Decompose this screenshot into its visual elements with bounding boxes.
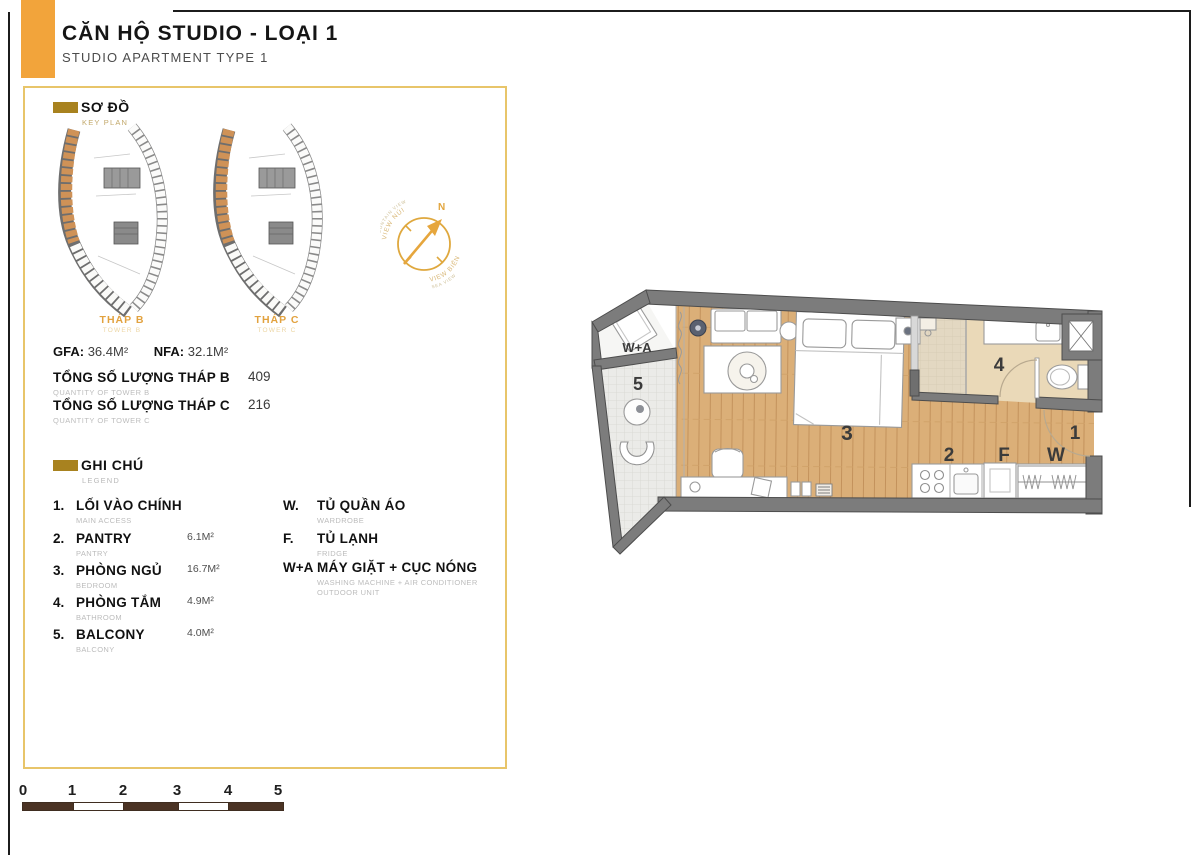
legend-title: GHI CHÚ [81, 457, 144, 473]
compass-north-label: N [438, 202, 445, 213]
label-bathroom: 4 [994, 355, 1005, 376]
legend-item-pantry: 2.PANTRY 6.1M² PANTRY [53, 530, 298, 558]
label-entrance: 1 [1070, 423, 1081, 444]
wardrobe [1018, 466, 1086, 498]
section-bar-icon [53, 102, 78, 113]
accent-bar [21, 0, 55, 78]
fridge [984, 463, 1016, 498]
scale-tick: 4 [224, 782, 232, 799]
bed [794, 312, 905, 428]
keyplan-title: SƠ ĐỒ [81, 99, 130, 115]
wall-stub [910, 370, 919, 396]
nfa-value: 32.1M² [188, 344, 228, 359]
shower-partition [911, 316, 918, 372]
tower-c-sublabel: TOWER C [258, 327, 297, 334]
quantity-c-label: TỔNG SỐ LƯỢNG THÁP C [53, 398, 230, 413]
label-bedroom: 3 [841, 422, 853, 445]
area-stats: GFA: 36.4M² NFA: 32.1M² [53, 344, 228, 359]
page-title: CĂN HỘ STUDIO - LOẠI 1 [62, 22, 338, 46]
page-frame-top [173, 10, 1191, 12]
mat [791, 482, 800, 496]
wall-bottom [658, 497, 1102, 513]
scale-tick: 2 [119, 782, 127, 799]
page-subtitle: STUDIO APARTMENT TYPE 1 [62, 50, 338, 65]
title-block: CĂN HỘ STUDIO - LOẠI 1 STUDIO APARTMENT … [62, 22, 338, 65]
quantity-b-value: 409 [248, 369, 271, 384]
floor-plan: W+A 5 3 4 1 2 F W [555, 255, 1200, 575]
scale-bar-segments [22, 802, 284, 811]
legend-item-balcony: 5.BALCONY 4.0M² BALCONY [53, 626, 298, 654]
quantity-tower-c: TỔNG SỐ LƯỢNG THÁP C 216 QUANTITY OF TOW… [53, 397, 333, 425]
tower-b-label: THÁP B [100, 313, 145, 326]
legend-item-entrance: 1.LỐI VÀO CHÍNH MAIN ACCESS [53, 497, 298, 525]
scale-tick: 0 [19, 782, 27, 799]
keyplan-towers: THÁP B TOWER B THÁP C TOWER C [40, 118, 350, 343]
tower-c-label: THÁP C [255, 313, 300, 326]
legend-section-header: GHI CHÚ LEGEND [53, 457, 144, 485]
legend-subtitle: LEGEND [82, 476, 144, 485]
kitchen-sink [954, 474, 978, 494]
gfa-value: 36.4M² [88, 344, 128, 359]
tower-b-sublabel: TOWER B [103, 327, 142, 334]
bathroom-door-leaf [1035, 358, 1039, 398]
label-pantry: 2 [944, 445, 955, 466]
quantity-b-sublabel: QUANTITY OF TOWER B [53, 388, 333, 397]
label-wardrobe: W [1047, 445, 1065, 466]
label-balcony: 5 [633, 374, 643, 394]
mat [802, 482, 811, 496]
legend-item-wardrobe: W.TỦ QUẦN ÁO WARDROBE [283, 497, 528, 525]
scale-bar: 0 1 2 3 4 5 [16, 782, 296, 822]
tower-b-plan: THÁP B TOWER B [65, 127, 163, 334]
page-frame-left [8, 12, 10, 855]
legend-left-column: 1.LỐI VÀO CHÍNH MAIN ACCESS 2.PANTRY 6.1… [53, 497, 303, 667]
compass-needle [404, 226, 436, 264]
legend-right-column: W.TỦ QUẦN ÁO WARDROBE F.TỦ LẠNH FRIDGE W… [283, 497, 498, 617]
chair [712, 449, 743, 479]
scale-tick: 5 [274, 782, 282, 799]
scale-tick: 1 [68, 782, 76, 799]
quantity-c-value: 216 [248, 397, 271, 412]
legend-item-washer-ac: W+AMÁY GIẶT + CỤC NÓNG WASHING MACHINE +… [283, 559, 528, 597]
quantity-c-sublabel: QUANTITY OF TOWER C [53, 416, 333, 425]
tower-c-plan: THÁP C TOWER C [220, 127, 318, 334]
gfa-label: GFA: [53, 344, 84, 359]
label-washer-ac: W+A [622, 340, 652, 355]
quantity-tower-b: TỔNG SỐ LƯỢNG THÁP B 409 QUANTITY OF TOW… [53, 369, 333, 397]
ac-unit-icon [816, 484, 832, 496]
legend-item-bathroom: 4.PHÒNG TẮM 4.9M² BATHROOM [53, 594, 298, 622]
nfa-label: NFA: [154, 344, 184, 359]
label-fridge: F [998, 445, 1010, 466]
pillow-icon [803, 319, 847, 348]
scale-tick: 3 [173, 782, 181, 799]
balcony-table [624, 399, 650, 425]
section-bar-icon [53, 460, 78, 471]
quantity-b-label: TỔNG SỐ LƯỢNG THÁP B [53, 370, 230, 385]
pillow-icon [852, 320, 896, 349]
legend-item-fridge: F.TỦ LẠNH FRIDGE [283, 530, 528, 558]
legend-item-bedroom: 3.PHÒNG NGỦ 16.7M² BEDROOM [53, 562, 298, 590]
toilet [1047, 365, 1090, 389]
compass: N VIEW NÚI MOUNTAIN VIEW VIEW BIỂN SEA V… [380, 196, 468, 292]
